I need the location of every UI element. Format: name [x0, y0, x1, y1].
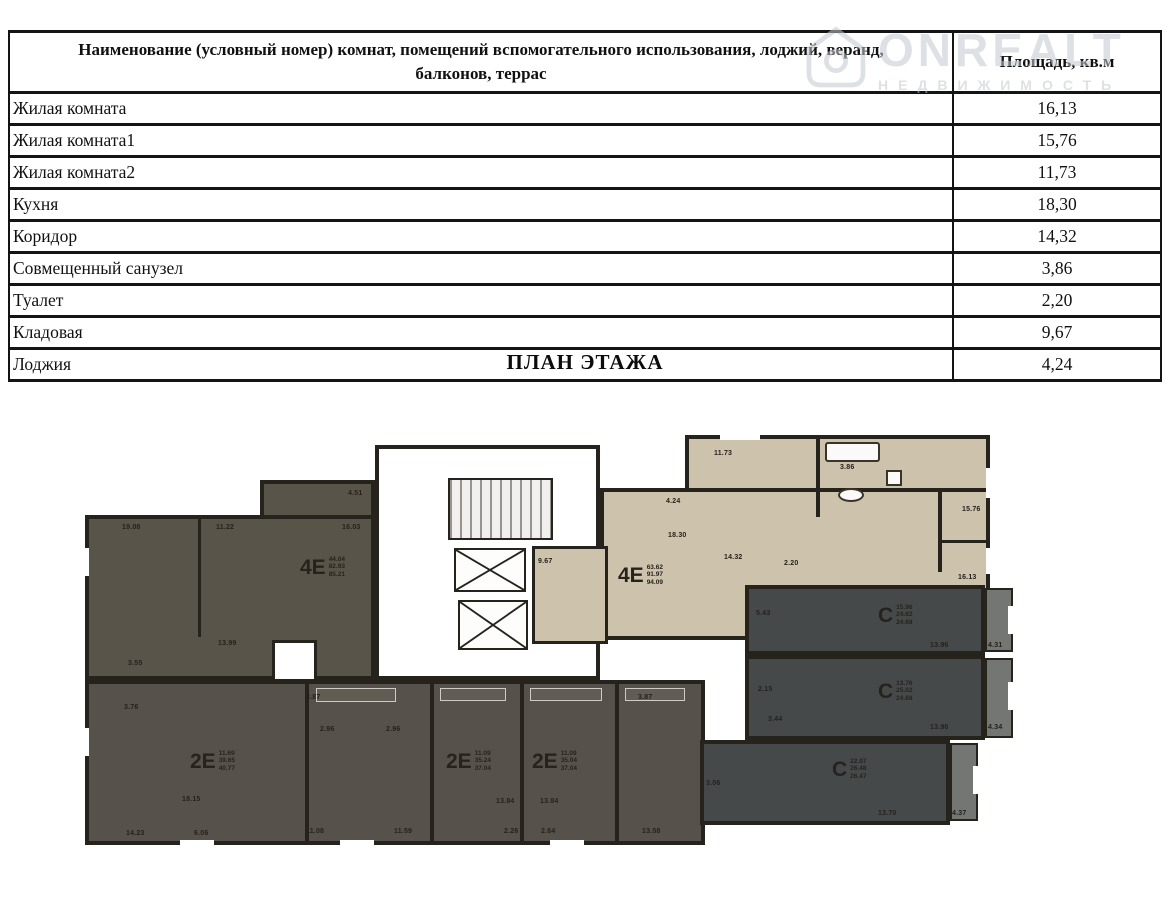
window-slot [1008, 682, 1014, 710]
staircase [448, 478, 553, 540]
room-area-label: 14.23 [126, 830, 145, 837]
room-area-label: 13.84 [540, 798, 559, 805]
room-name-cell: Совмещенный санузел [9, 252, 953, 284]
room-name-cell: Жилая комната1 [9, 124, 953, 156]
room-area-label: 2.15 [758, 686, 772, 693]
apartment-tag-4е: 4Е63.6291.9794.09 [618, 564, 663, 586]
room-area-label: 11.08 [306, 828, 324, 835]
apartment-type-label: 4Е [300, 557, 326, 578]
room-area-label: 13.58 [642, 828, 661, 835]
room-area-cell: 15,76 [953, 124, 1161, 156]
apartment-areas-stack: 13.7625.0224.68 [896, 680, 912, 702]
room-area-label: 13.96 [930, 642, 949, 649]
room-name-cell: Туалет [9, 284, 953, 316]
room-area-cell: 11,73 [953, 156, 1161, 188]
kitchen-counter [316, 688, 396, 702]
room-area-label: 2.96 [320, 726, 334, 733]
apartment-type-label: 4Е [618, 565, 644, 586]
table-row: Туалет2,20 [9, 284, 1161, 316]
room-area-label: 13.84 [496, 798, 515, 805]
header-room-names: Наименование (условный номер) комнат, по… [9, 32, 953, 93]
room-area-cell: 2,20 [953, 284, 1161, 316]
elevator-shaft-1 [454, 548, 526, 592]
kitchen-counter [530, 688, 602, 701]
room-area-label: 11.22 [216, 524, 234, 531]
room-area-label: 11.59 [394, 828, 412, 835]
apartment-tag-4е: 4Е44.0482.9385.21 [300, 556, 345, 578]
kitchen-counter [440, 688, 506, 701]
apartment-tag-с: С15.9624.6224.68 [878, 604, 912, 626]
room-area-label: 3.06 [706, 780, 720, 787]
light-shaft [272, 640, 317, 682]
left-apartment-divider [198, 517, 201, 637]
room-area-label: 5.43 [756, 610, 770, 617]
room-area-label: 6.06 [194, 830, 208, 837]
apartment-areas-stack: 11.0935.2437.04 [475, 750, 491, 772]
room-area-label: 15.76 [962, 506, 981, 513]
apartment-area-value: 37.04 [475, 765, 491, 772]
apartment-areas-stack: 44.0482.9385.21 [329, 556, 345, 578]
apartment-areas-stack: 11.0935.0437.04 [561, 750, 577, 772]
room-area-label: 3.86 [840, 464, 854, 471]
elevator-shaft-2 [458, 600, 528, 650]
apartment-area-value: 26.47 [850, 773, 866, 780]
window-slot [550, 840, 584, 847]
table-row: Совмещенный санузел3,86 [9, 252, 1161, 284]
apartment-area-value: 26.48 [850, 765, 866, 772]
room-area-label: 3.44 [768, 716, 782, 723]
room-area-label: 2.96 [386, 726, 400, 733]
table-row: Коридор14,32 [9, 220, 1161, 252]
room-area-label: 3.55 [128, 660, 142, 667]
room-area-label: 16.13 [958, 574, 977, 581]
room-name-cell: Жилая комната [9, 92, 953, 124]
header-area: Площадь, кв.м [953, 32, 1161, 93]
room-area-label: 4.51 [348, 490, 362, 497]
room-area-cell: 9,67 [953, 316, 1161, 348]
row-divider-2 [430, 682, 434, 843]
studio-2 [745, 655, 985, 740]
apartment-areas-stack: 11.6939.6540.77 [219, 750, 235, 772]
apartment-area-value: 40.77 [219, 765, 235, 772]
room-area-label: 9.67 [538, 558, 552, 565]
apartments-2e-row [85, 680, 705, 845]
table-row: Кладовая9,67 [9, 316, 1161, 348]
apartment-tag-с: С13.7625.0224.68 [878, 680, 912, 702]
apartment-area-value: 94.09 [647, 579, 663, 586]
table-header-row: Наименование (условный номер) комнат, по… [9, 32, 1161, 93]
room-name-cell: Жилая комната2 [9, 156, 953, 188]
room-area-cell: 3,86 [953, 252, 1161, 284]
window-slot [973, 766, 979, 794]
room-area-label: 4.34 [988, 724, 1002, 731]
room-area-label: 11.73 [714, 450, 732, 457]
apartment-area-value: 24.68 [896, 619, 912, 626]
apartment-tag-2е: 2Е11.6939.6540.77 [190, 750, 235, 772]
table-row: Жилая комната211,73 [9, 156, 1161, 188]
apartment-tag-2е: 2Е11.0935.2437.04 [446, 750, 491, 772]
window-slot [83, 548, 89, 576]
apartment-type-label: С [878, 681, 893, 702]
window-slot [986, 548, 992, 574]
room-area-label: 2.64 [541, 828, 555, 835]
beige-room-divider-wall3 [942, 540, 988, 543]
room-name-cell: Кладовая [9, 316, 953, 348]
table-row: Кухня18,30 [9, 188, 1161, 220]
room-name-cell: Кухня [9, 188, 953, 220]
apartment-area-value: 24.62 [896, 611, 912, 618]
apartment-area-value: 39.65 [219, 757, 235, 764]
room-area-cell: 18,30 [953, 188, 1161, 220]
apartment-areas-stack: 15.9624.6224.68 [896, 604, 912, 626]
room-area-label: 3.76 [124, 704, 138, 711]
room-area-cell: 14,32 [953, 220, 1161, 252]
page-title: ПЛАН ЭТАЖА [0, 350, 1170, 375]
apartment-type-label: С [832, 759, 847, 780]
bathtub-icon [825, 442, 880, 462]
room-area-label: 4.24 [666, 498, 680, 505]
window-slot [1008, 606, 1014, 634]
apartment-area-value: 15.96 [896, 604, 912, 611]
beige-room-divider-wall [816, 437, 820, 517]
apartment-areas-stack: 22.0726.4826.47 [850, 758, 866, 780]
room-area-label: 16.03 [342, 524, 361, 531]
apartment-areas-stack: 63.6291.9794.09 [647, 564, 663, 586]
room-area-label: 13.96 [930, 724, 949, 731]
room-area-label: 18.30 [668, 532, 687, 539]
room-area-label: 13.99 [218, 640, 237, 647]
apartment-area-value: 22.07 [850, 758, 866, 765]
apartment-area-value: 35.24 [475, 757, 491, 764]
room-area-label: 2.20 [784, 560, 798, 567]
apartment-type-label: 2Е [446, 751, 472, 772]
window-slot [83, 728, 89, 756]
apartment-area-value: 91.97 [647, 571, 663, 578]
table-row: Жилая комната115,76 [9, 124, 1161, 156]
kitchen-counter [625, 688, 685, 701]
table-row: Жилая комната16,13 [9, 92, 1161, 124]
apartment-type-label: С [878, 605, 893, 626]
studio-3 [700, 740, 950, 825]
apartment-area-value: 37.04 [561, 765, 577, 772]
room-area-label: 19.08 [122, 524, 141, 531]
apartment-type-label: 2Е [190, 751, 216, 772]
floor-plan: 19.0811.2216.034.5113.993.553.7618.1514.… [80, 428, 1050, 873]
room-area-cell: 16,13 [953, 92, 1161, 124]
window-slot [986, 468, 992, 498]
room-area-label: 13.70 [878, 810, 897, 817]
row-divider-4 [615, 682, 619, 843]
apartment-area-value: 85.21 [329, 571, 345, 578]
room-area-label: 4.31 [988, 642, 1002, 649]
window-slot [180, 840, 214, 847]
room-area-label: 14.32 [724, 554, 743, 561]
beige-room-divider-wall2 [938, 492, 942, 572]
toilet-icon [838, 488, 864, 502]
apartment-area-value: 11.09 [561, 750, 577, 757]
apartment-area-value: 44.04 [329, 556, 345, 563]
room-name-cell: Коридор [9, 220, 953, 252]
room-area-label: 18.15 [182, 796, 201, 803]
apartment-area-value: 11.09 [475, 750, 491, 757]
apartment-area-value: 35.04 [561, 757, 577, 764]
room-area-label: 4.37 [952, 810, 966, 817]
room-area-label: 3.87 [306, 694, 320, 701]
table-body: Жилая комната16,13Жилая комната115,76Жил… [9, 92, 1161, 380]
window-slot [340, 840, 374, 847]
row-divider-1 [305, 682, 309, 843]
studio-1 [745, 585, 985, 655]
rooms-area-table: Наименование (условный номер) комнат, по… [8, 30, 1162, 382]
apartment-area-value: 82.93 [329, 563, 345, 570]
apartment-area-value: 13.76 [896, 680, 912, 687]
apartment-area-value: 63.62 [647, 564, 663, 571]
apartment-area-value: 24.68 [896, 695, 912, 702]
apartment-area-value: 25.02 [896, 687, 912, 694]
apartment-type-label: 2Е [532, 751, 558, 772]
apartment-tag-с: С22.0726.4826.47 [832, 758, 866, 780]
apartment-4e-left-main [85, 515, 375, 680]
row-divider-3 [520, 682, 524, 843]
sink-icon [886, 470, 902, 486]
window-slot [720, 434, 760, 440]
apartment-tag-2е: 2Е11.0935.0437.04 [532, 750, 577, 772]
room-area-label: 3.87 [638, 694, 652, 701]
apartment-area-value: 11.69 [219, 750, 235, 757]
room-area-label: 2.26 [504, 828, 518, 835]
